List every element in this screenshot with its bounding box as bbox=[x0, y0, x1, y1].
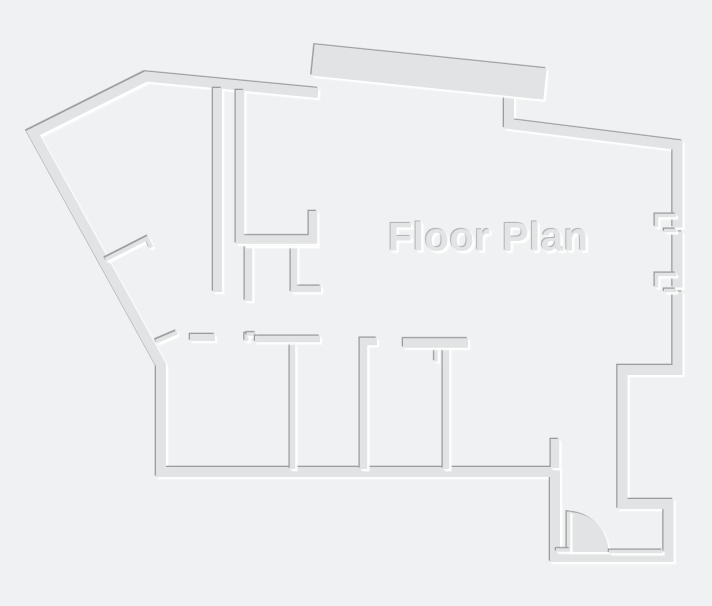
kitchen-wall-main bbox=[240, 90, 313, 240]
room-divider-2 bbox=[364, 342, 378, 470]
kitchen-stub-right bbox=[294, 246, 321, 289]
walls-layer bbox=[33, 60, 678, 557]
floor-plan-canvas: Floor Plan bbox=[0, 0, 712, 606]
page: { "title": { "label": "Floor Plan" }, "c… bbox=[0, 0, 712, 606]
diagonal-wall-stub-lower bbox=[156, 333, 177, 342]
door-swing-arc bbox=[569, 512, 609, 552]
diagonal-wall-stub-upper bbox=[106, 239, 152, 260]
floor-plan-stage: Floor Plan bbox=[0, 0, 712, 606]
terrace-slab bbox=[313, 60, 545, 84]
floor-plan-title: Floor Plan bbox=[388, 216, 589, 260]
exterior-outline-wall bbox=[33, 77, 678, 558]
top-right-wall bbox=[509, 96, 678, 228]
